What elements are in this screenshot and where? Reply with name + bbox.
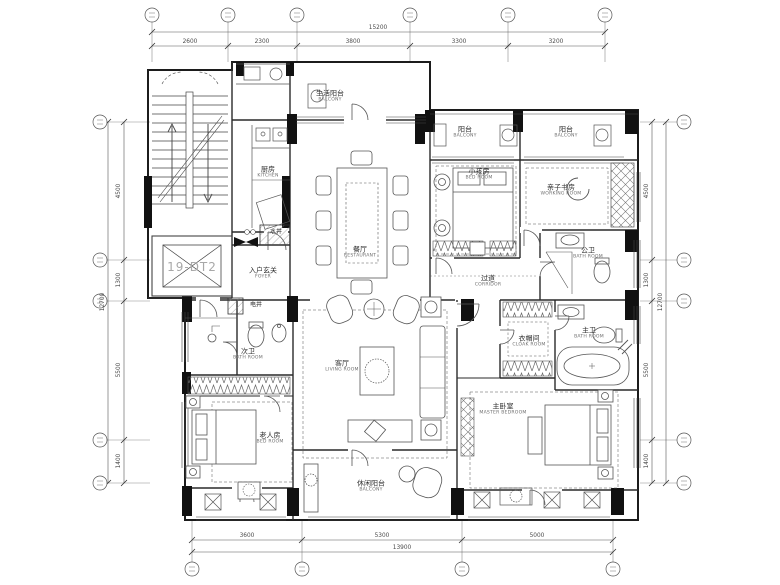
dim-right-2: 1300 (644, 273, 650, 288)
dim-top-2: 2300 (255, 39, 270, 45)
room-label-foyer-en: FOYER (249, 274, 277, 279)
room-label-master-bath-en: BATH ROOM (574, 334, 604, 339)
dim-left-overall: 12700 (100, 293, 106, 311)
dim-bottom-3: 5000 (530, 533, 545, 539)
room-label-life-balcony-en: BALCONY (316, 97, 344, 102)
room-label-balcony-1-en: BALCONY (453, 133, 476, 138)
dim-right-3: 5500 (644, 363, 650, 378)
room-label-master-bedroom: 主卧室 MASTER BEDROOM (479, 402, 526, 415)
public-bath-fixtures (546, 233, 610, 294)
dim-top-4: 3300 (452, 39, 467, 45)
room-label-water-shaft-cn: 水井 (270, 230, 282, 237)
room-label-living-room-en: LIVING ROOM (325, 367, 358, 372)
room-label-foyer: 入户玄关 FOYER (249, 266, 277, 279)
room-label-public-bath-cn: 公卫 (573, 246, 603, 254)
dim-right-1: 4500 (644, 184, 650, 199)
room-label-life-balcony-cn: 生活阳台 (316, 89, 344, 97)
floor-plan-canvas: 生活阳台 BALCONY 厨房 KITCHEN 水井 19-DT2 入户玄关 F… (0, 0, 780, 585)
room-label-cloak-room-en: CLOAK ROOM (512, 342, 545, 347)
room-label-living-room: 客厅 LIVING ROOM (325, 359, 358, 372)
room-label-kitchen-en: KITCHEN (257, 173, 278, 178)
stairs (152, 72, 228, 208)
room-label-life-balcony: 生活阳台 BALCONY (316, 89, 344, 102)
room-label-balcony-1: 阳台 BALCONY (453, 125, 476, 138)
living-room-furniture (303, 292, 447, 458)
room-label-balcony-1-cn: 阳台 (453, 125, 476, 133)
room-label-second-bath: 次卫 BATH ROOM (233, 347, 263, 360)
room-label-corridor-en: CORRIDOR (475, 282, 502, 287)
dim-left-4: 1400 (116, 454, 122, 469)
room-label-second-bath-en: BATH ROOM (233, 355, 263, 360)
dim-left-3: 5500 (116, 363, 122, 378)
elevator-label: 19-DT2 (167, 260, 217, 274)
dim-top-3: 3800 (346, 39, 361, 45)
room-label-master-bedroom-cn: 主卧室 (479, 402, 526, 410)
dim-left-1: 4500 (116, 184, 122, 199)
room-label-leisure-balcony-cn: 休闲阳台 (357, 479, 385, 487)
dim-top-1: 2600 (183, 39, 198, 45)
room-label-cloak-room-cn: 衣帽间 (512, 334, 545, 342)
room-label-master-bedroom-en: MASTER BEDROOM (479, 410, 526, 415)
room-label-dining-en: RESTAURANT (344, 253, 376, 258)
room-label-kids-bedroom: 小孩房 BED ROOM (465, 167, 492, 180)
room-label-corridor-cn: 过道 (475, 274, 502, 282)
room-label-living-room-cn: 客厅 (325, 359, 358, 367)
room-label-balcony-2: 阳台 BALCONY (554, 125, 577, 138)
dim-bottom-overall: 13900 (393, 545, 411, 551)
room-label-electric-shaft-cn: 电井 (250, 303, 262, 310)
room-label-elder-bedroom: 老人房 BED ROOM (256, 431, 283, 444)
electric-shaft-box (228, 298, 243, 314)
dining-table-set (316, 151, 408, 294)
room-label-kitchen: 厨房 KITCHEN (257, 165, 278, 178)
room-label-leisure-balcony: 休闲阳台 BALCONY (357, 479, 385, 492)
room-label-kids-bedroom-cn: 小孩房 (465, 167, 492, 175)
room-label-corridor: 过道 CORRIDOR (475, 274, 502, 287)
room-label-elder-bedroom-en: BED ROOM (256, 439, 283, 444)
room-label-kitchen-cn: 厨房 (257, 165, 278, 173)
dim-right-4: 1400 (644, 454, 650, 469)
dim-bottom-1: 3600 (240, 533, 255, 539)
room-label-public-bath-en: BATH ROOM (573, 254, 603, 259)
room-label-master-bath-cn: 主卫 (574, 326, 604, 334)
room-label-leisure-balcony-en: BALCONY (357, 487, 385, 492)
room-label-balcony-2-en: BALCONY (554, 133, 577, 138)
elder-bedroom-furniture (186, 396, 292, 499)
elder-closet (188, 377, 290, 394)
dim-right-overall: 12700 (658, 293, 664, 311)
second-bath-fixtures (185, 318, 286, 347)
room-label-working-room-cn: 亲子书房 (541, 183, 582, 191)
room-label-kids-bedroom-en: BED ROOM (465, 175, 492, 180)
room-label-dining-cn: 餐厅 (344, 245, 376, 253)
dim-top-overall: 15200 (369, 25, 387, 31)
room-label-elder-bedroom-cn: 老人房 (256, 431, 283, 439)
room-label-water-shaft: 水井 (270, 230, 282, 237)
room-label-balcony-2-cn: 阳台 (554, 125, 577, 133)
dim-top-5: 3200 (549, 39, 564, 45)
room-label-electric-shaft: 电井 (250, 303, 262, 310)
master-bath-fixtures (557, 305, 632, 385)
dim-bottom-2: 5300 (375, 533, 390, 539)
dim-left-2: 1300 (116, 273, 122, 288)
room-label-cloak-room: 衣帽间 CLOAK ROOM (512, 334, 545, 347)
room-label-second-bath-cn: 次卫 (233, 347, 263, 355)
room-label-foyer-cn: 入户玄关 (249, 266, 277, 274)
room-label-master-bath: 主卫 BATH ROOM (574, 326, 604, 339)
laundry-counter (236, 64, 326, 108)
room-label-public-bath: 公卫 BATH ROOM (573, 246, 603, 259)
room-label-working-room-en: WORKING ROOM (541, 191, 582, 196)
room-label-working-room: 亲子书房 WORKING ROOM (541, 183, 582, 196)
room-label-dining: 餐厅 RESTAURANT (344, 245, 376, 258)
